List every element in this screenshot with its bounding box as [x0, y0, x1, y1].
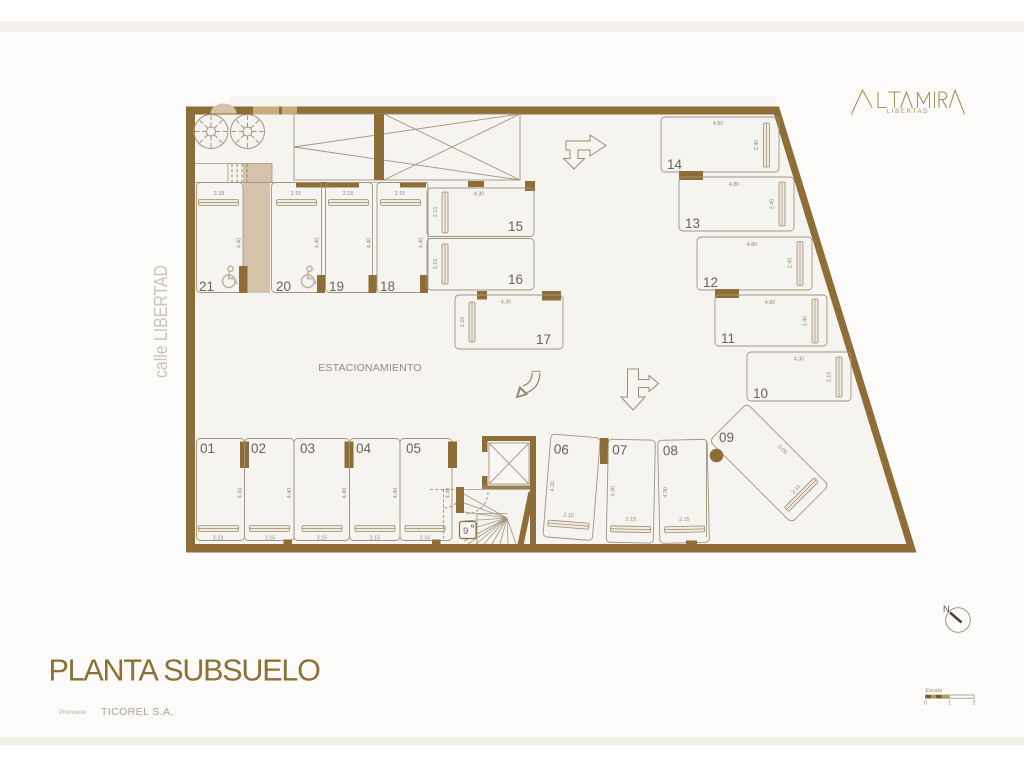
svg-text:2.15: 2.15 — [291, 191, 302, 197]
svg-text:calle LIBERTAD: calle LIBERTAD — [150, 265, 171, 378]
svg-text:Escala: Escala — [926, 688, 943, 694]
svg-text:10: 10 — [753, 386, 768, 401]
svg-text:2.23: 2.23 — [213, 536, 224, 542]
svg-text:2.15: 2.15 — [265, 536, 276, 542]
svg-text:2: 2 — [972, 701, 975, 707]
svg-text:11: 11 — [721, 331, 735, 346]
svg-text:01: 01 — [200, 441, 215, 456]
svg-text:21: 21 — [199, 279, 214, 294]
svg-text:4.40: 4.40 — [393, 488, 399, 499]
svg-text:2.15: 2.15 — [563, 512, 574, 519]
svg-text:2.40: 2.40 — [770, 199, 776, 210]
svg-text:4.80: 4.80 — [765, 300, 776, 306]
svg-text:03: 03 — [300, 441, 315, 456]
svg-text:18: 18 — [380, 279, 395, 294]
svg-text:19: 19 — [329, 279, 344, 294]
svg-text:2.15: 2.15 — [460, 317, 466, 328]
svg-text:4.30: 4.30 — [610, 486, 616, 497]
svg-text:07: 07 — [612, 442, 627, 457]
svg-text:PLANTA SUBSUELO: PLANTA SUBSUELO — [49, 654, 321, 688]
svg-text:4.30: 4.30 — [794, 357, 805, 363]
svg-text:4.40: 4.40 — [315, 238, 321, 249]
svg-text:2.18: 2.18 — [214, 191, 225, 197]
svg-text:2.15: 2.15 — [343, 191, 354, 197]
svg-text:2.15: 2.15 — [433, 207, 439, 218]
svg-text:4.80: 4.80 — [747, 242, 758, 248]
svg-text:2.15: 2.15 — [433, 259, 439, 270]
svg-text:2.15: 2.15 — [317, 536, 328, 542]
svg-text:4.80: 4.80 — [713, 121, 724, 127]
svg-text:2.15: 2.15 — [625, 517, 636, 523]
svg-text:2.40: 2.40 — [754, 140, 760, 151]
svg-text:4.40: 4.40 — [238, 488, 244, 499]
svg-text:08: 08 — [663, 443, 678, 458]
svg-text:13: 13 — [685, 216, 700, 231]
svg-text:4.40: 4.40 — [287, 488, 293, 499]
svg-text:2.15: 2.15 — [370, 536, 381, 542]
svg-text:TICOREL S.A.: TICOREL S.A. — [101, 706, 174, 718]
svg-text:4.40: 4.40 — [237, 238, 243, 249]
svg-text:05: 05 — [406, 441, 421, 456]
svg-text:2.15: 2.15 — [679, 517, 690, 523]
svg-text:06: 06 — [553, 441, 569, 457]
svg-text:0: 0 — [924, 701, 927, 707]
svg-text:2.15: 2.15 — [827, 372, 833, 383]
svg-text:4.30: 4.30 — [549, 481, 556, 492]
svg-text:14: 14 — [667, 157, 683, 172]
svg-text:9: 9 — [463, 526, 468, 537]
svg-text:09: 09 — [719, 430, 734, 445]
svg-text:4.30: 4.30 — [474, 192, 485, 198]
svg-text:4.30: 4.30 — [501, 300, 512, 306]
svg-text:2.15: 2.15 — [395, 191, 406, 197]
svg-text:2.40: 2.40 — [788, 258, 794, 269]
svg-text:12: 12 — [703, 275, 718, 290]
svg-text:20: 20 — [276, 279, 291, 294]
svg-text:02: 02 — [251, 441, 266, 456]
svg-text:N: N — [943, 604, 950, 614]
svg-text:15: 15 — [508, 219, 523, 234]
svg-text:LIBERTAD: LIBERTAD — [887, 108, 930, 115]
svg-text:4.40: 4.40 — [367, 238, 373, 249]
svg-text:Promueve: Promueve — [59, 710, 87, 716]
svg-text:1: 1 — [948, 701, 951, 707]
svg-text:2.40: 2.40 — [803, 316, 809, 327]
svg-text:ESTACIONAMIENTO: ESTACIONAMIENTO — [318, 362, 422, 374]
svg-text:4.40: 4.40 — [342, 488, 348, 499]
svg-text:2.16: 2.16 — [420, 536, 431, 542]
svg-text:04: 04 — [356, 441, 372, 456]
svg-text:4.40: 4.40 — [419, 238, 425, 249]
svg-text:16: 16 — [508, 272, 523, 287]
svg-text:17: 17 — [536, 332, 551, 347]
svg-text:4.30: 4.30 — [663, 487, 669, 498]
svg-text:4.80: 4.80 — [729, 182, 740, 188]
